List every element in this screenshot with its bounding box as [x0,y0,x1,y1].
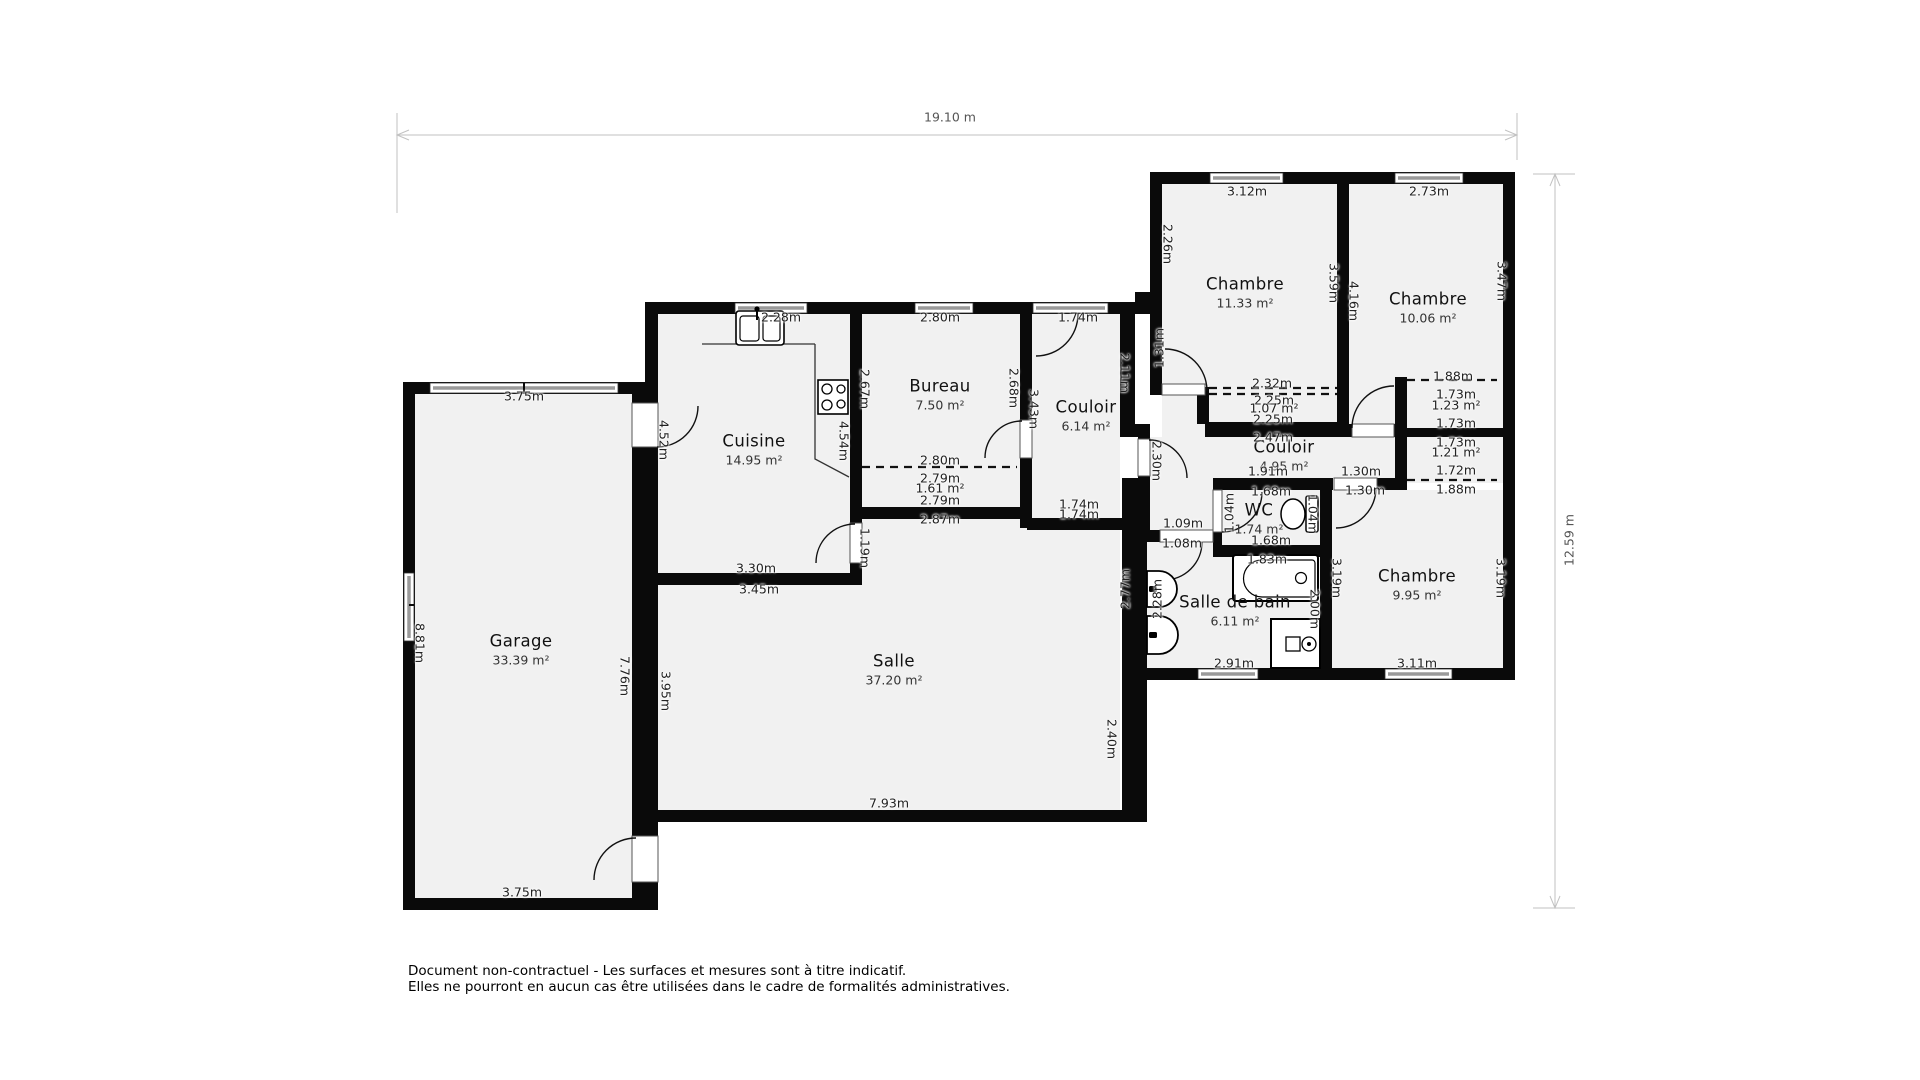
shower [1271,619,1320,668]
disclaimer-line-2: Elles ne pourront en aucun cas être util… [408,979,1010,995]
floor-plan-page: 19.10 m 12.59 m Chambre11.33 m²Chambre10… [0,0,1920,1080]
bathtub [1233,555,1318,601]
floor-plan-drawing [0,0,1920,1080]
toilet [1281,496,1318,532]
kitchen-sink [736,306,784,345]
washbasin-2 [1147,616,1178,654]
disclaimer: Document non-contractuel - Les surfaces … [408,963,1010,995]
washbasin-1 [1147,571,1177,607]
stove-cooktop [818,380,848,414]
disclaimer-line-1: Document non-contractuel - Les surfaces … [408,963,1010,979]
